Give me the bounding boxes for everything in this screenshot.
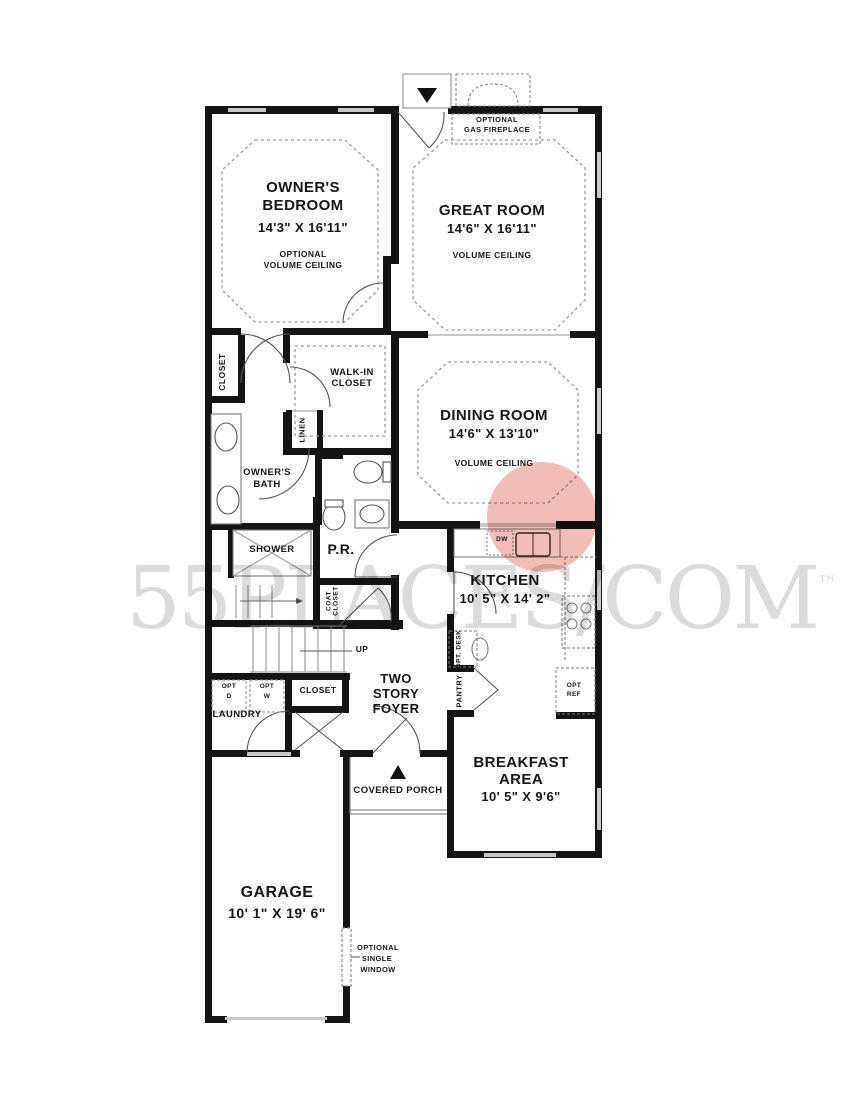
- opt-washer-label-line2: W: [264, 694, 271, 701]
- breakfast-area-name-line1: BREAKFAST: [473, 755, 568, 770]
- dining-room-dims: 14'6" X 13'10": [449, 427, 540, 440]
- owners-bedroom-name-line2: BEDROOM: [262, 198, 343, 213]
- bedroom-closet-label: CLOSET: [218, 353, 228, 390]
- owners-bedroom-note-line1: OPTIONAL: [279, 250, 326, 259]
- watermark-main: 55PLACES: [126, 549, 576, 649]
- watermark-separator: /: [576, 549, 602, 649]
- watermark-text: 55PLACES/COM™: [126, 556, 837, 642]
- garage-name: GARAGE: [241, 885, 314, 901]
- great-room-dims: 14'6" X 16'11": [447, 222, 537, 235]
- watermark-trademark: ™: [817, 571, 837, 595]
- foyer-closet-label: CLOSET: [300, 686, 337, 695]
- optional-window-label-line3: WINDOW: [360, 966, 395, 974]
- owners-bedroom-note-line2: VOLUME CEILING: [264, 261, 343, 270]
- walk-in-closet-label-line2: CLOSET: [332, 379, 373, 389]
- garage-dims: 10' 1" X 19' 6": [228, 906, 326, 920]
- pantry-label: PANTRY: [456, 675, 465, 708]
- owners-bath-label-line2: BATH: [253, 480, 280, 490]
- breakfast-area-name-line2: AREA: [499, 772, 543, 787]
- owners-bedroom-name-line1: OWNER'S: [266, 180, 340, 195]
- optional-window-label-line1: OPTIONAL: [357, 944, 399, 952]
- linen-label: LINEN: [299, 418, 308, 443]
- opt-dryer-label-line2: D: [226, 694, 231, 701]
- owners-bath-label-line1: OWNER'S: [243, 468, 291, 478]
- great-room-note: VOLUME CEILING: [453, 251, 532, 260]
- opt-washer-label-line1: OPT: [260, 684, 275, 691]
- fireplace-label-line2: GAS FIREPLACE: [464, 126, 530, 134]
- laundry-label: LAUNDRY: [213, 710, 262, 720]
- walk-in-closet-label-line1: WALK-IN: [330, 368, 373, 378]
- opt-ref-label-line2: REF: [567, 692, 581, 699]
- owners-bedroom-dims: 14'3" X 16'11": [258, 221, 348, 234]
- porch-entry-marker: [390, 765, 406, 779]
- optional-window-label-line2: SINGLE: [362, 955, 392, 963]
- opt-dryer-label-line1: OPT: [222, 684, 237, 691]
- floor-plan: OPTIONAL GAS FIREPLACE OWNER'S BEDROOM 1…: [0, 0, 860, 1113]
- great-room-name: GREAT ROOM: [439, 203, 545, 218]
- dining-room-name: DINING ROOM: [440, 408, 548, 423]
- fireplace-label-line1: OPTIONAL: [476, 116, 518, 124]
- foyer-label-line1: TWO: [380, 672, 412, 685]
- foyer-label-line3: FOYER: [373, 702, 420, 715]
- opt-ref-label-line1: OPT: [567, 683, 582, 690]
- optional-window-gap: [343, 928, 350, 986]
- watermark-domain: COM: [602, 549, 817, 649]
- breakfast-area-dims: 10' 5" X 9'6": [481, 790, 560, 803]
- foyer-label-line2: STORY: [373, 687, 419, 700]
- covered-porch-label: COVERED PORCH: [353, 786, 442, 796]
- entry-marker: [403, 74, 451, 108]
